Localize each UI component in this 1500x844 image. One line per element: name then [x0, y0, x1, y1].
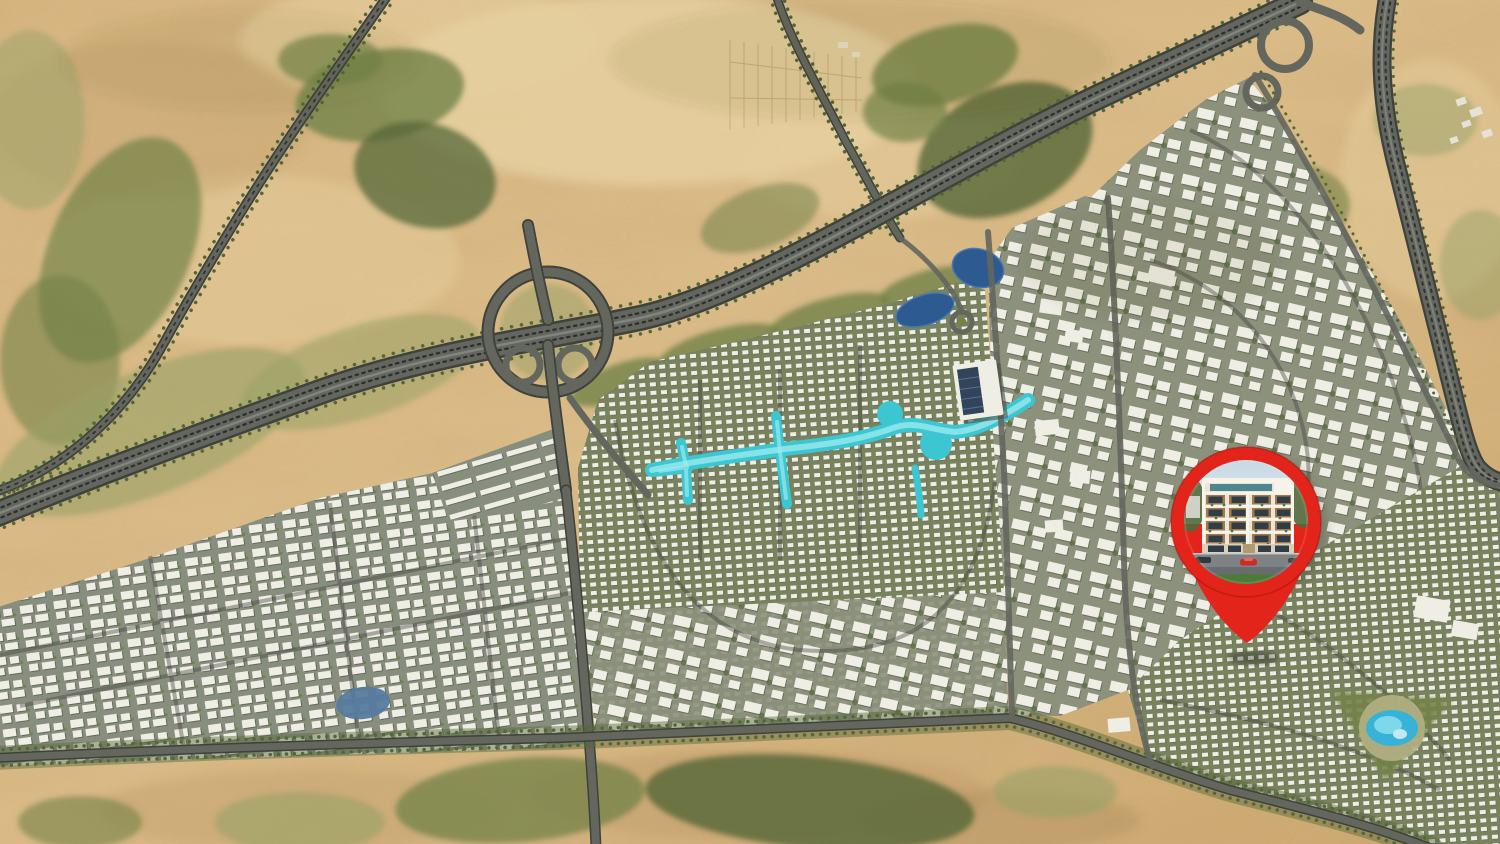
- atmosphere-overlay: [0, 0, 1500, 844]
- map-render: [0, 0, 1500, 844]
- masterplan-map: [0, 0, 1500, 844]
- photo-building: [1202, 478, 1294, 553]
